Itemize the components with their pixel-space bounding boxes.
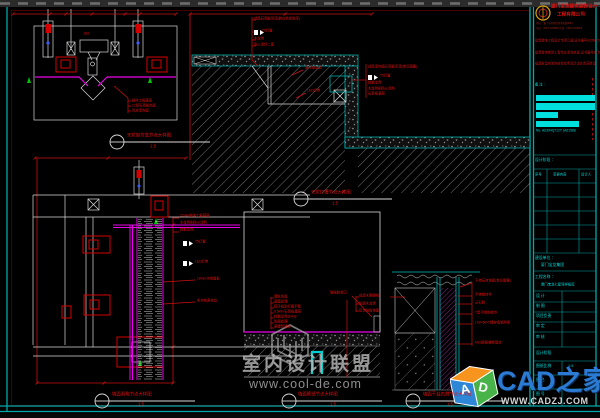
project-value: 厦门宝龙七星湾样板房	[541, 283, 575, 286]
callout-scale: 1:5	[138, 402, 144, 406]
annotation-label: L50×50×5镀锌角钢骨架	[475, 321, 510, 324]
annotation-label: 玻璃胶收口	[330, 291, 347, 294]
annotation-label: 轻钢龙骨	[368, 81, 381, 84]
cadzj-cube-icon	[450, 363, 500, 413]
callout-title: 墙面阴角节点大样图	[112, 392, 152, 396]
annotation-label: 细木工板基层	[132, 99, 152, 102]
annotation-label: T5灯管	[262, 29, 273, 32]
revision-col-content: 变更内容	[553, 173, 566, 176]
cadzj-site-url: WWW.CADZJ.COM	[501, 397, 589, 406]
annotation-label: 12mm细木工板基层	[180, 214, 209, 217]
annotation-label: 成品木踢脚线	[359, 294, 379, 297]
annotation-label: 成品石膏板吊顶(刷白色乳胶漆)	[254, 17, 300, 20]
annotation-label: 9.5mm石膏板基层	[274, 310, 301, 313]
client-label: 建设单位 ：	[535, 256, 555, 260]
annotation-label: 窗帘盒轨道	[305, 66, 322, 69]
field-approve: 审 定	[536, 324, 545, 328]
annotation-label: 实木线条收边	[197, 299, 217, 302]
callout-scale: 1:5	[150, 144, 156, 148]
company-address: 地址：厦门市思明区湖滨南路888号	[536, 22, 574, 24]
annotation-label: 云石胶	[475, 301, 485, 304]
callout-title: 天花窗帘盒节点大样图	[127, 133, 171, 137]
certificate-line: 建筑装饰工程设计专项乙级 证书编号A235005888	[535, 39, 600, 42]
callout-scale: 1:5	[447, 402, 453, 406]
annotation-label: 乳胶漆饰面	[132, 109, 149, 112]
callout-title: 天花灯槽节点大样图	[311, 190, 351, 194]
watermark-site-url: www.cool-de.com	[249, 378, 362, 391]
project-label: 工程名称 ：	[535, 275, 555, 279]
company-name-line2: 工程有限公司	[557, 12, 585, 17]
client-value: 厦门宝龙集团	[541, 263, 564, 267]
revision-col-index: 序号	[535, 173, 542, 176]
cadzj-site-name: CAD之家	[497, 368, 600, 395]
stage-label: 设计阶段 ：	[535, 158, 555, 162]
annotation-label: 腻子批刮打磨平整	[274, 305, 301, 308]
titleblock-highlight-bar	[536, 112, 558, 118]
note-label: 备 注 ：	[535, 83, 547, 86]
annotation-label: 防潮处理	[274, 320, 287, 323]
annotation-label: T5灯管	[195, 240, 206, 243]
annotation-label: 成品漆饰面石膏板吊顶(参见图集)	[368, 65, 417, 68]
watermark-site-name: 室内设计联盟	[242, 355, 374, 374]
titleblock-highlight-bar	[536, 103, 595, 110]
annotation-label: 防火涂料二度	[254, 43, 274, 46]
annotation-label: 干挂石材饰面(参见图集)	[475, 279, 511, 282]
annotation-label: 木龙骨	[254, 37, 264, 40]
titleblock-highlight-bar	[536, 121, 579, 127]
annotation-label: 墙纸饰面	[274, 295, 287, 298]
field-check: 审 核	[536, 335, 545, 339]
dim-label: 800	[84, 32, 90, 35]
annotation-label: M10膨胀螺栓固定	[475, 341, 502, 344]
annotation-label: LED灯带	[195, 260, 208, 263]
callout-title: 墙面壁纸节点大样图	[298, 392, 338, 396]
callout-scale: 1:5	[332, 201, 338, 205]
annotation-label: 石膏板基层	[368, 92, 385, 95]
annotation-label: 木龙骨刷防火涂料	[368, 87, 395, 90]
annotation-label: 轻钢龙骨	[180, 228, 193, 231]
annotation-label: 基膜处理	[274, 300, 287, 303]
certificate-line: 福建省室内装饰协会优秀设计企业会员单位	[535, 62, 596, 65]
certificate-number: No. A0394Q712Y (A01568	[536, 129, 576, 132]
annotation-label: 12厚石膏板饰面	[132, 104, 156, 107]
cad-sheet: 800 细木工板基层 12厚石膏板饰面 乳胶漆饰面 成品石膏板吊顶(刷白色乳胶漆…	[0, 0, 600, 418]
titleblock-highlight-bar	[536, 95, 595, 101]
field-stage: 设计阶段	[536, 351, 551, 355]
annotation-label: 轻钢龙骨@400	[274, 315, 296, 318]
annotation-label: 18mm木饰面板	[197, 277, 220, 280]
annotation-label: 防腐木龙骨	[359, 302, 376, 305]
callout-scale: 1:5	[330, 402, 336, 406]
company-phone: 电话：0592-5205888 传真：0592-5205889	[536, 27, 582, 29]
annotation-label: LED灯带	[307, 89, 320, 92]
field-design: 设 计	[536, 294, 545, 298]
company-name-line1: 厦门宝龙建筑装饰设计	[551, 4, 597, 9]
certificate-line: 建筑装饰装修工程专业承包贰级 证书编号B2350059	[535, 51, 600, 54]
field-project-lead: 项目负责	[536, 314, 551, 318]
annotation-label: 复合地板饰面	[359, 309, 379, 312]
annotation-label: 木龙骨刷防火涂料	[180, 221, 207, 224]
annotation-label: T型不锈钢挂件	[475, 311, 497, 314]
annotation-label: 不锈钢挂件	[475, 293, 492, 296]
revision-col-designer: 设计人	[581, 173, 591, 176]
annotation-label: 原建筑墙体	[274, 325, 291, 328]
field-draft: 制 图	[536, 304, 545, 308]
annotation-label: T5灯管	[380, 74, 391, 77]
